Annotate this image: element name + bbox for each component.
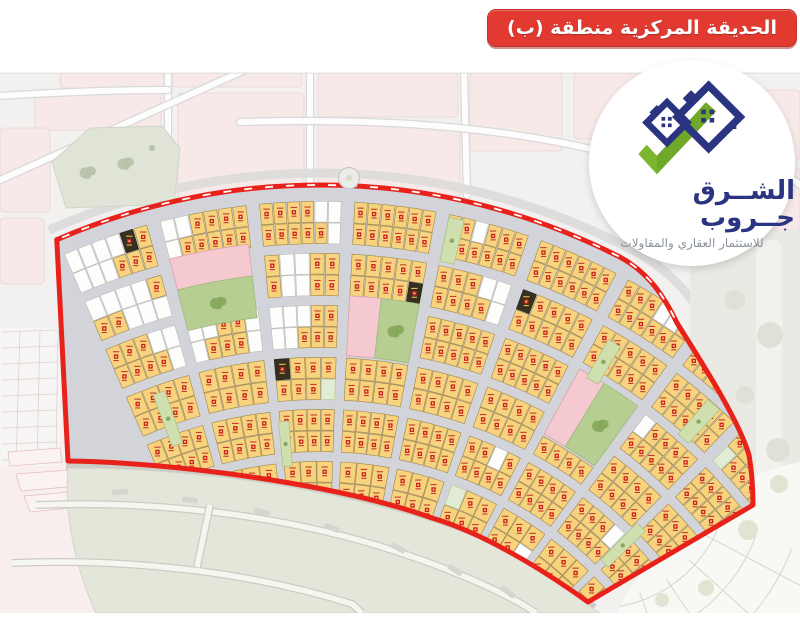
company-name: الشــرق جــروب <box>589 178 795 233</box>
plot <box>281 276 296 297</box>
company-tagline: للاستثمار العقاري والمقاولات <box>620 236 763 250</box>
company-logo: الشــرق جــروب للاستثمار العقاري والمقاو… <box>589 60 795 266</box>
bottom-margin <box>0 613 800 627</box>
plot <box>285 327 298 348</box>
small-house-windows <box>661 117 671 127</box>
plot <box>296 275 310 296</box>
houses-icon <box>611 80 773 178</box>
plot <box>315 201 328 222</box>
plot <box>295 254 309 275</box>
plot <box>321 379 335 400</box>
plot <box>247 330 262 352</box>
plot <box>280 254 295 275</box>
plot <box>328 202 341 223</box>
banner-title: الحديقة المركزية منطقة (ب) <box>507 17 777 39</box>
plot <box>297 306 310 327</box>
plot <box>328 223 340 244</box>
roundabout <box>339 168 360 189</box>
flyer-page: الحديقة المركزية منطقة (ب) الشــرق جــرو… <box>0 0 800 627</box>
plot <box>283 306 297 327</box>
title-banner: الحديقة المركزية منطقة (ب) <box>487 9 797 47</box>
plot <box>269 307 283 329</box>
plot <box>271 328 285 350</box>
